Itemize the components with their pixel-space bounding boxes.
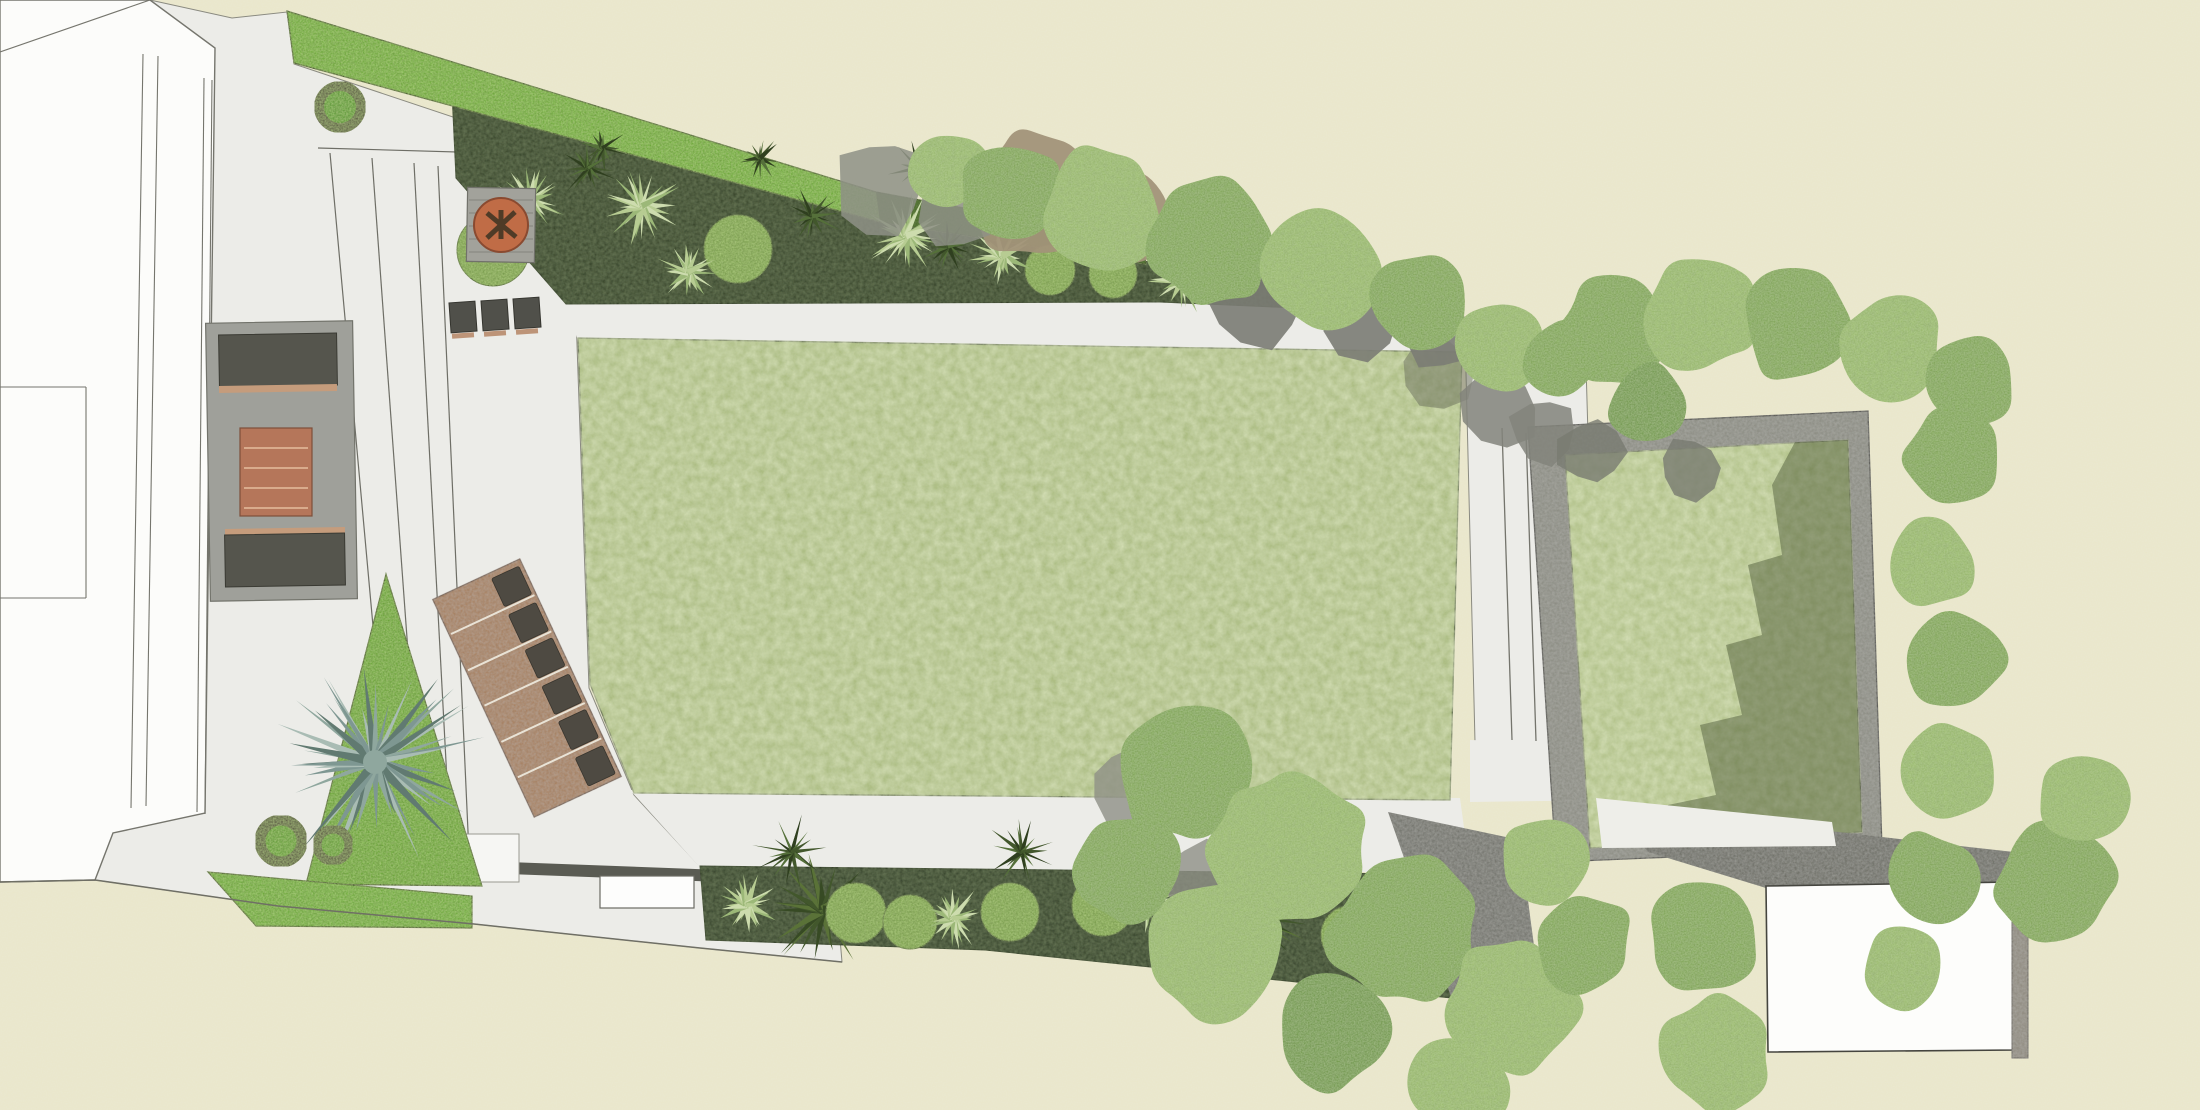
clipped-ball-shrub — [883, 895, 937, 949]
sofa — [219, 333, 338, 387]
clipped-ball-shrub — [981, 883, 1039, 941]
garden-plan: Top-down garden landscape design plan — [0, 0, 2200, 1110]
house-footprint — [0, 0, 215, 882]
garden-gate — [600, 876, 694, 908]
main-lawn — [578, 338, 1462, 800]
tree-canopy — [1651, 882, 1756, 990]
coffee-table — [240, 428, 312, 516]
potted-shrub — [319, 86, 361, 128]
clipped-ball-shrub — [826, 883, 886, 943]
plan-svg — [0, 0, 2200, 1110]
patio-stool — [449, 301, 477, 333]
patio-stool — [513, 297, 541, 329]
potted-shrub — [260, 820, 302, 862]
potted-shrub — [317, 829, 349, 861]
tree-canopy — [2040, 756, 2130, 840]
sofa — [225, 533, 346, 587]
patio-stool — [481, 299, 509, 331]
clipped-ball-shrub — [704, 215, 772, 283]
